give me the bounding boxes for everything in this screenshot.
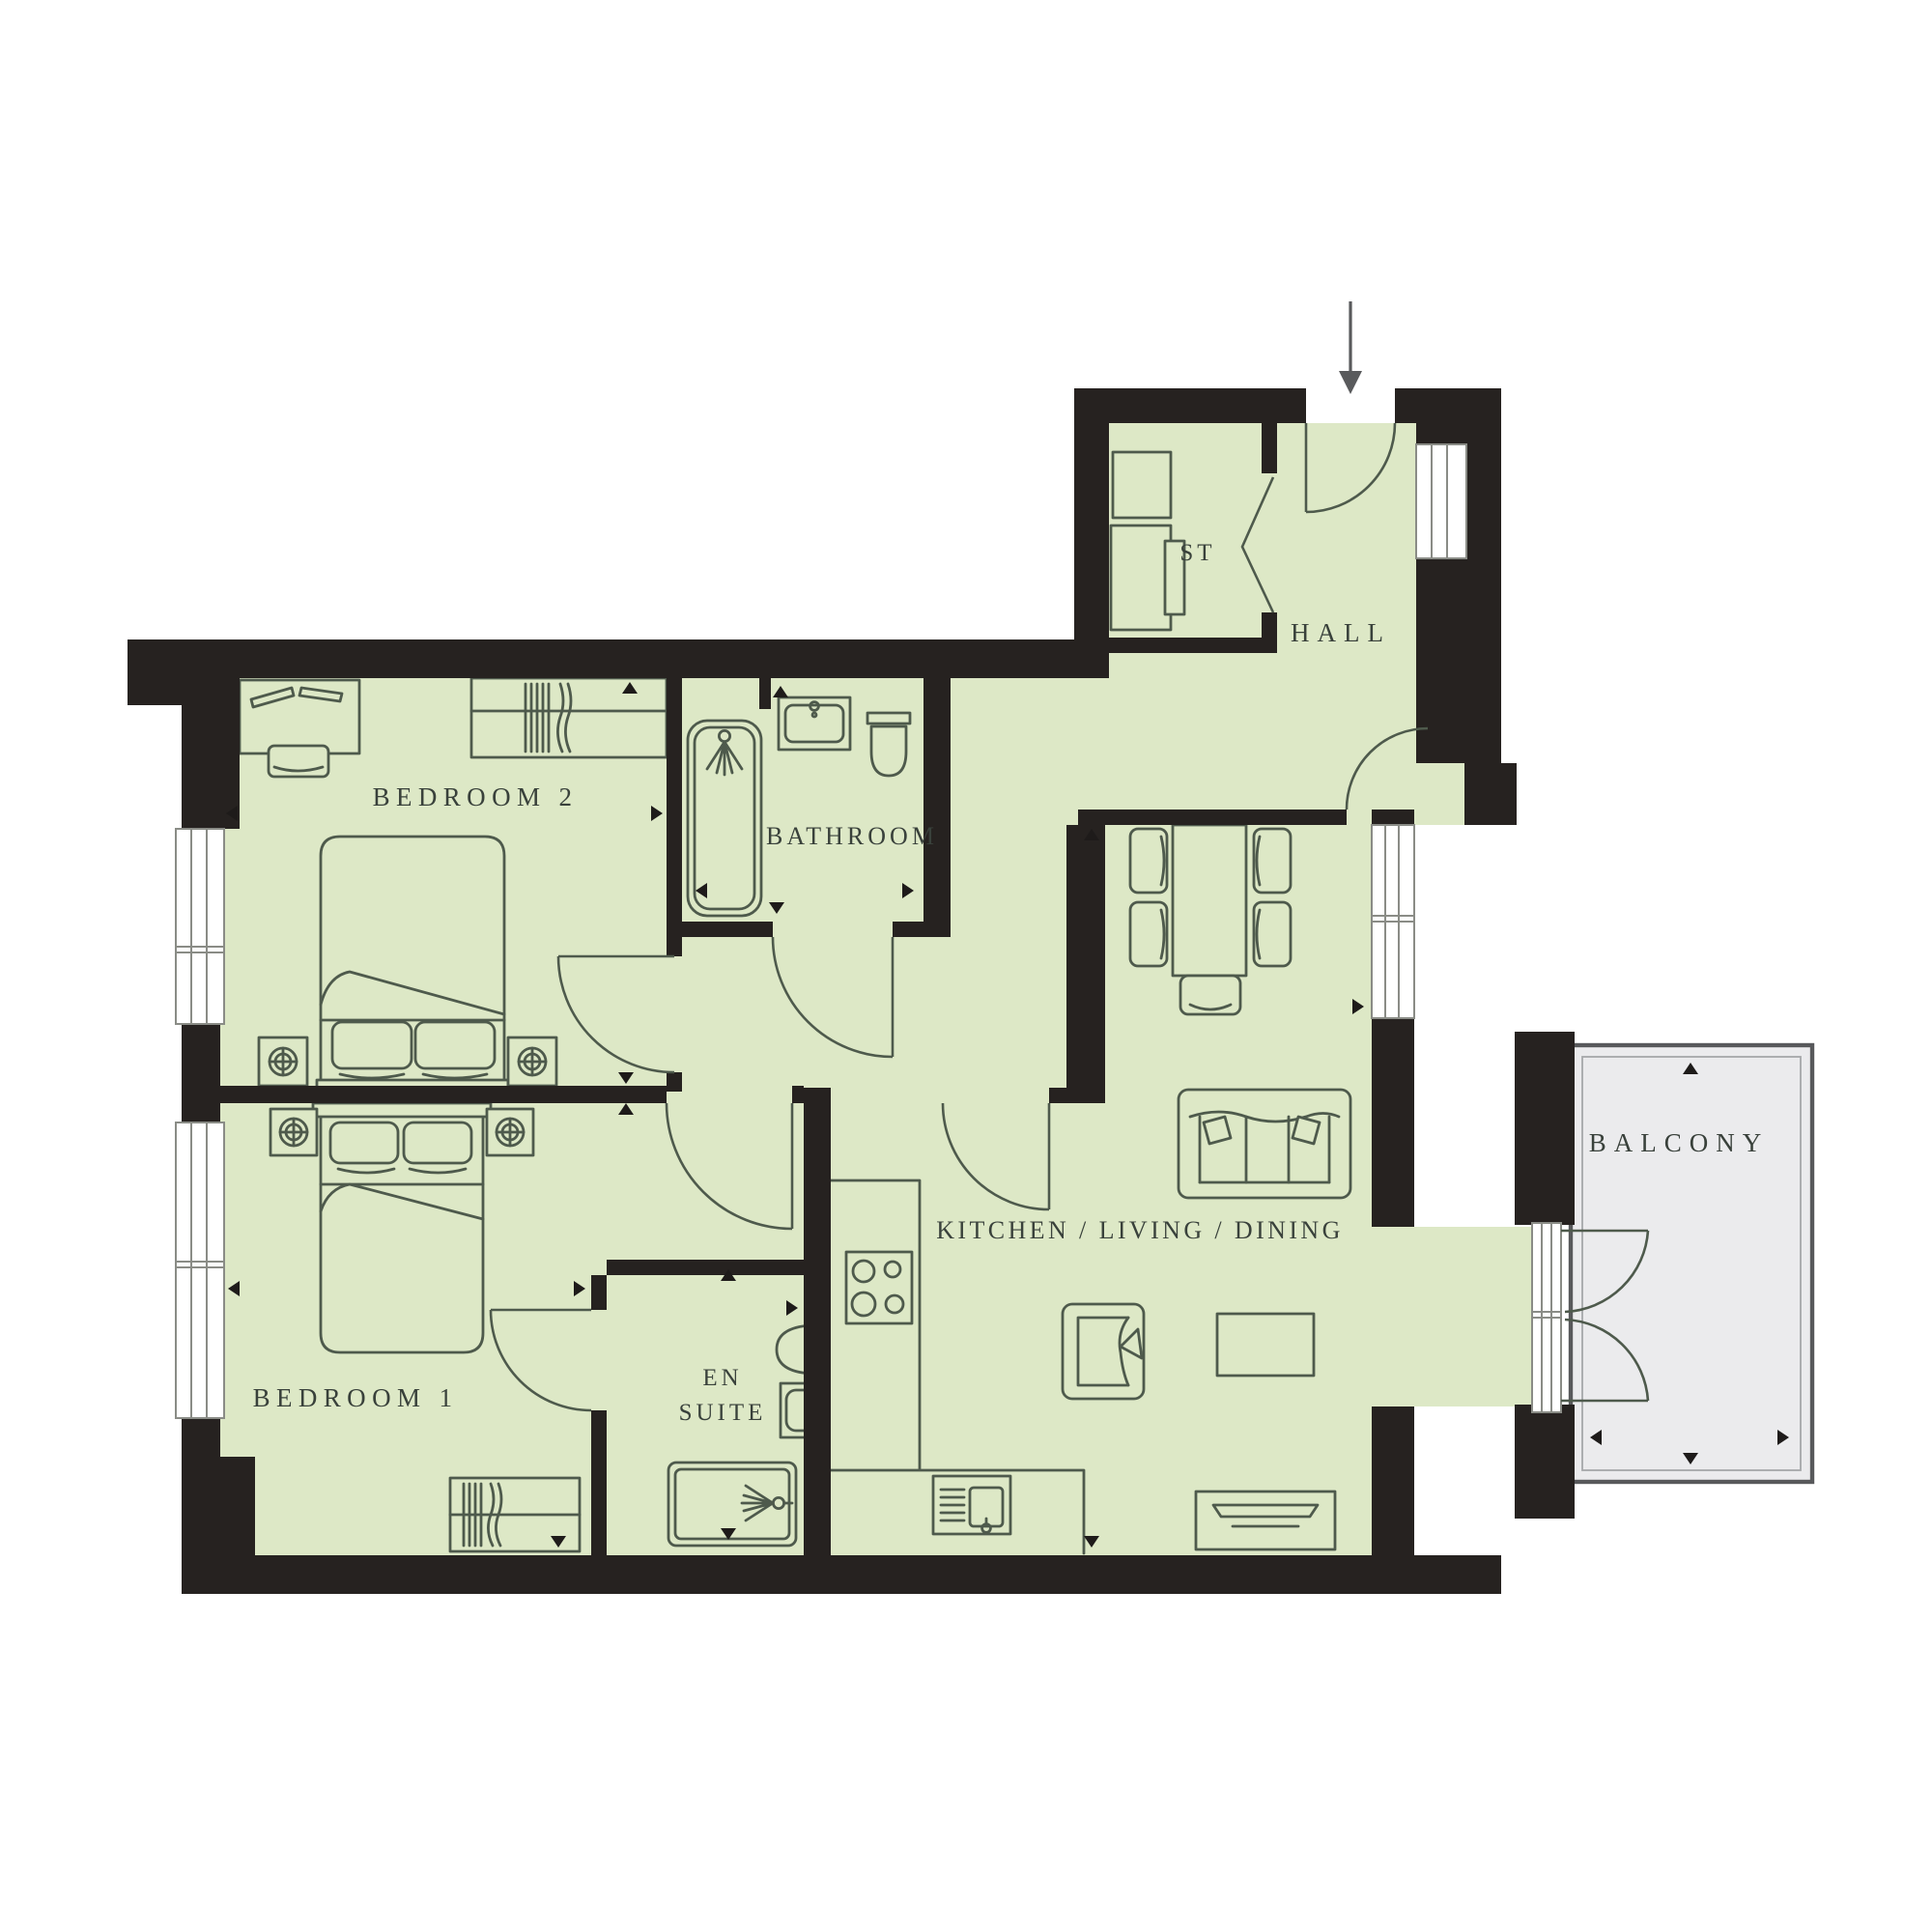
coffee-table-icon xyxy=(1217,1314,1314,1376)
bedroom2-label: BEDROOM 2 xyxy=(373,782,579,811)
dining-chair-icon xyxy=(1254,829,1291,893)
bedside-table-icon xyxy=(487,1109,533,1155)
kitchen-living-dining-label: KITCHEN / LIVING / DINING xyxy=(936,1216,1344,1244)
wash-basin-icon xyxy=(779,697,850,750)
bathtub-icon xyxy=(688,721,761,916)
dining-table-icon xyxy=(1173,825,1246,976)
armchair-icon xyxy=(1063,1304,1144,1399)
hall-window xyxy=(1416,444,1466,558)
double-bed-icon xyxy=(317,837,508,1095)
kitchen-window xyxy=(1372,825,1414,1018)
ensuite-label-line1: EN xyxy=(702,1365,742,1391)
hob-icon xyxy=(846,1252,912,1323)
ensuite-label-line2: SUITE xyxy=(679,1400,767,1426)
sofa-icon xyxy=(1179,1090,1350,1198)
entry-arrow-icon xyxy=(1339,301,1362,394)
dining-chair-icon xyxy=(1130,829,1167,893)
toilet-icon xyxy=(867,713,910,776)
kitchen-sink-icon xyxy=(933,1476,1010,1534)
dining-chair-icon xyxy=(1130,902,1167,966)
floor-plan-svg: BEDROOM 2 BEDROOM 1 BATHROOM EN SUITE ST… xyxy=(0,0,1932,1932)
tv-unit-icon xyxy=(1196,1492,1335,1549)
balcony-side-wall xyxy=(1515,1405,1575,1519)
balcony-door-bay-floor xyxy=(1372,1227,1534,1406)
balcony-door-frame xyxy=(1532,1223,1561,1412)
bedside-table-icon xyxy=(270,1109,317,1155)
bedside-table-icon xyxy=(259,1037,307,1086)
bedroom2-window xyxy=(176,829,224,1024)
balcony-floor xyxy=(1571,1045,1812,1482)
floor-plan: BEDROOM 2 BEDROOM 1 BATHROOM EN SUITE ST… xyxy=(0,0,1932,1932)
storage-label: ST xyxy=(1179,540,1215,566)
bedside-table-icon xyxy=(508,1037,556,1086)
wardrobe-icon xyxy=(471,678,667,757)
balcony-side-wall xyxy=(1515,1032,1575,1225)
bathroom-label: BATHROOM xyxy=(766,822,938,850)
bedroom1-window xyxy=(176,1122,224,1418)
balcony-label: BALCONY xyxy=(1589,1128,1770,1157)
dining-chair-icon xyxy=(1180,976,1240,1014)
double-bed-icon xyxy=(313,1103,491,1352)
hall-label: HALL xyxy=(1291,618,1391,647)
bedroom1-label: BEDROOM 1 xyxy=(253,1383,459,1412)
dining-chair-icon xyxy=(1254,902,1291,966)
